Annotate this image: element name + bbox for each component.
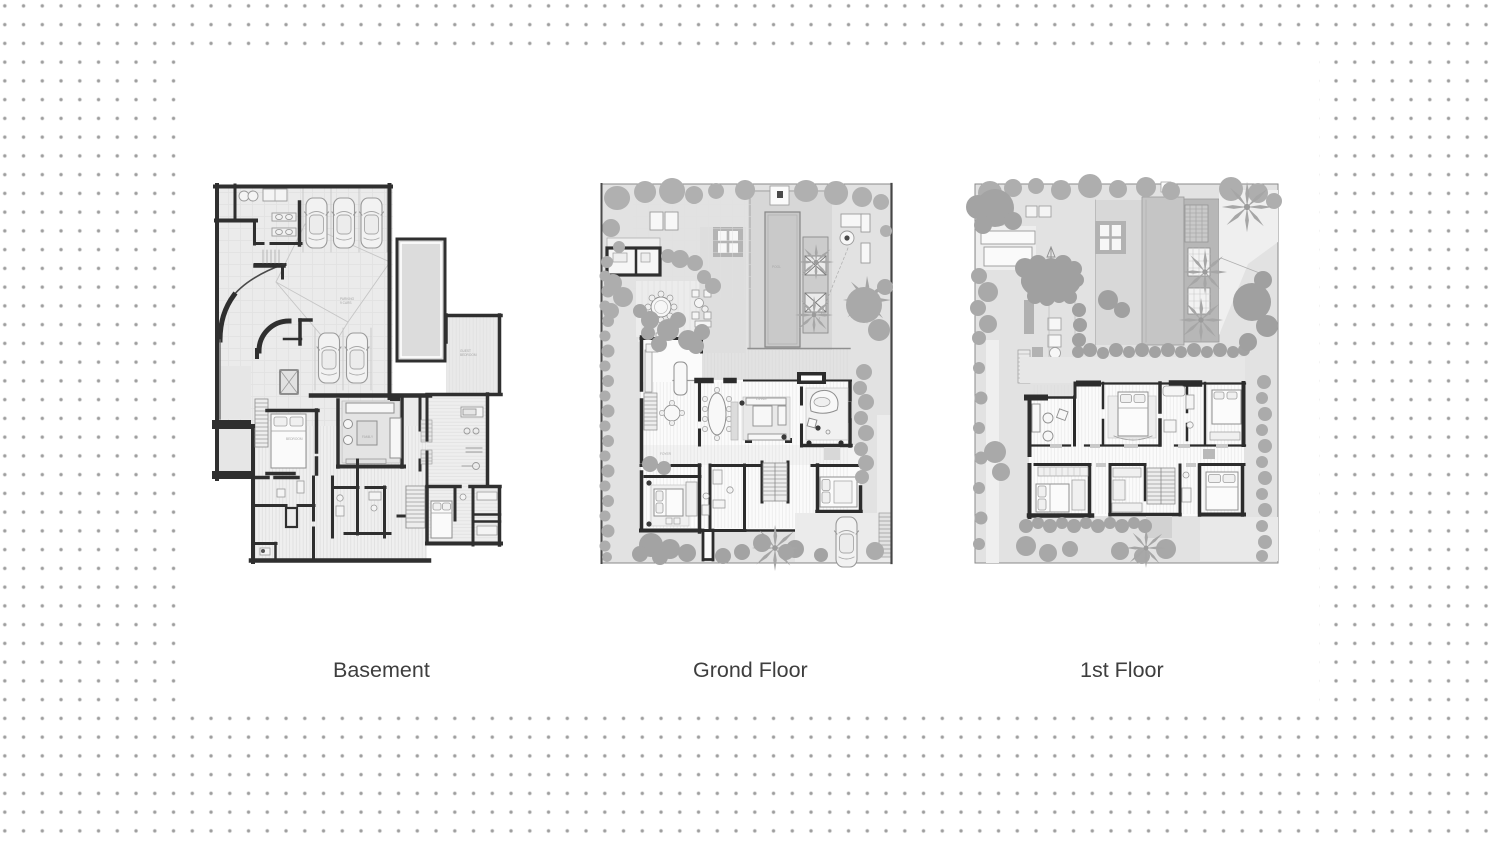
svg-text:BEDROOM: BEDROOM bbox=[286, 437, 303, 441]
svg-text:POOL: POOL bbox=[772, 265, 781, 269]
svg-text:9 CARS: 9 CARS bbox=[340, 301, 352, 305]
svg-text:BEDROOM: BEDROOM bbox=[460, 353, 477, 357]
svg-text:FAMILY: FAMILY bbox=[362, 435, 374, 439]
svg-text:LIVING: LIVING bbox=[756, 397, 767, 401]
svg-text:FOYER: FOYER bbox=[660, 452, 672, 456]
